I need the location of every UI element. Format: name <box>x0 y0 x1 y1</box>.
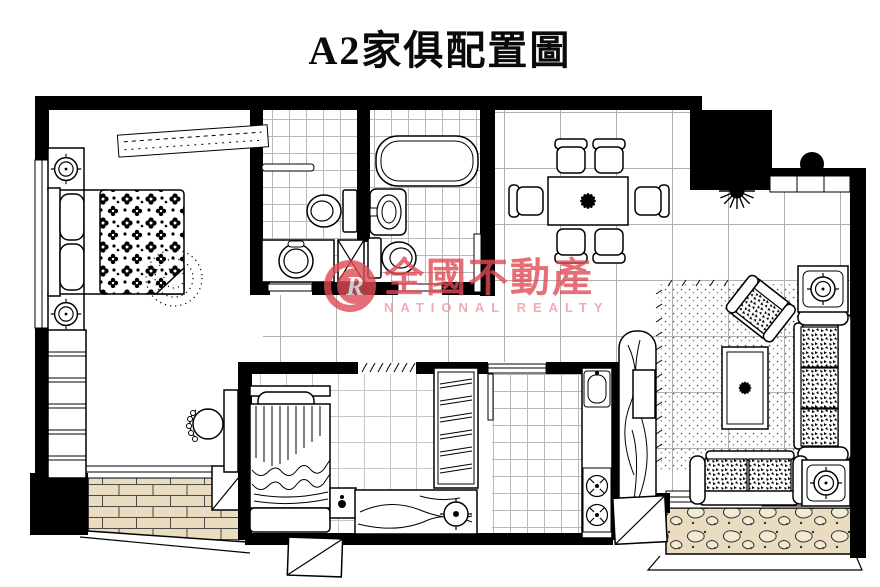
window-icon <box>86 466 212 478</box>
tv-cabinet-icon <box>619 331 656 523</box>
wardrobe-icon <box>48 330 86 478</box>
towel-bar-icon <box>262 164 314 171</box>
realty-logo-icon: R <box>324 260 376 312</box>
potted-plant-icon <box>719 173 755 209</box>
nightstand-lamp-icon <box>48 148 84 190</box>
balcony-left <box>80 466 250 553</box>
side-table-lamp-icon <box>798 266 848 312</box>
single-bed-icon <box>250 386 330 532</box>
realty-brand-name: 全國不動產 <box>384 256 610 300</box>
kitchen-sink-icon <box>584 371 610 407</box>
nightstand-lamp-icon <box>48 294 84 334</box>
nightstand-icon <box>330 488 356 518</box>
round-planter-icon <box>800 152 824 176</box>
dining-chair-icon <box>509 185 543 217</box>
coffee-table-icon <box>722 347 768 429</box>
door-hatch-icon <box>362 363 415 372</box>
dining-chair-icon <box>555 139 587 173</box>
vanity-chair-icon <box>187 409 224 442</box>
window-icon <box>35 160 49 328</box>
dining-table-icon <box>548 177 628 225</box>
vanity-table-icon <box>224 390 238 472</box>
realty-brand-name-en: NATIONAL REALTY <box>384 300 610 316</box>
realty-logo-letter: R <box>337 268 373 304</box>
loveseat-icon <box>690 451 808 505</box>
washbasin-icon <box>370 189 406 235</box>
ac-unit-icon <box>613 496 667 545</box>
three-seat-sofa-icon <box>794 310 851 462</box>
door-leaf-icon <box>268 284 312 291</box>
master-bedroom <box>48 125 269 478</box>
floor-plan-page: A2家俱配置圖 R 全國不動產 NATIONAL REALTY <box>0 0 880 587</box>
side-table-lamp-icon <box>802 460 850 506</box>
overhead-cabinet-icon <box>117 125 268 157</box>
bathtub-icon <box>376 136 478 186</box>
wardrobe-icon <box>434 368 478 488</box>
double-bed-icon <box>48 188 184 296</box>
tv-icon <box>633 370 655 418</box>
console-cabinet-icon <box>770 176 850 192</box>
dining-chair-icon <box>593 139 625 173</box>
stove-icon <box>583 468 611 532</box>
ac-unit-icon <box>287 537 342 577</box>
dining-chair-icon <box>635 185 669 217</box>
realty-watermark: R 全國不動產 NATIONAL REALTY <box>324 256 584 330</box>
plan-title: A2家俱配置圖 <box>0 18 880 76</box>
